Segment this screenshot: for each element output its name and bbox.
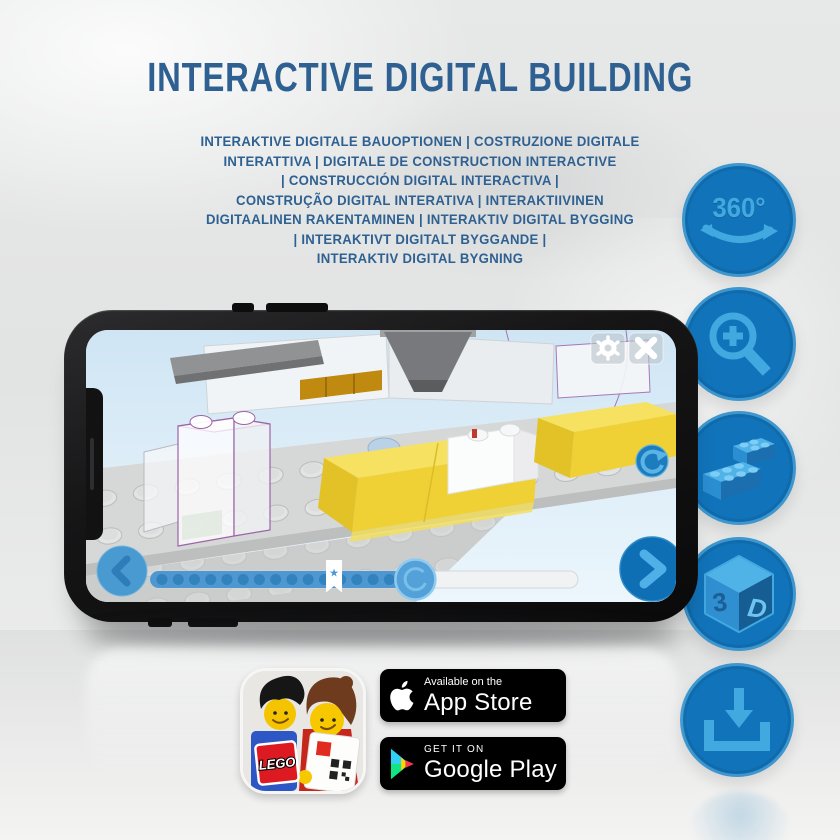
settings-button[interactable] [591, 333, 625, 364]
progress-dot [221, 574, 232, 585]
girl-hand [298, 770, 312, 784]
progress-dot [205, 574, 216, 585]
download-icon [699, 682, 775, 758]
progress-dot [384, 574, 395, 585]
rotate-button[interactable] [636, 445, 668, 477]
progress-dot [351, 574, 362, 585]
progress-dot [189, 574, 200, 585]
lego-app-icon[interactable]: LEGO [240, 668, 366, 794]
progress-dot [254, 574, 265, 585]
progress-dot [368, 574, 379, 585]
cube-face-d: D [746, 592, 769, 624]
progress-dot [303, 574, 314, 585]
subtitle-line: INTERATTIVA | DIGITALE DE CONSTRUCTION I… [25, 152, 815, 172]
progress-dot [157, 574, 168, 585]
red-detail [472, 429, 477, 438]
close-button[interactable] [629, 333, 663, 364]
apple-icon [380, 678, 424, 714]
360-label: 360° [712, 192, 765, 224]
app-screen: ★ [86, 330, 676, 602]
speaker-slit [90, 438, 94, 490]
google-play-badge[interactable]: GET IT ON Google Play [380, 737, 566, 790]
progress-dot [286, 574, 297, 585]
page-title: INTERACTIVE DIGITAL BUILDING [0, 54, 840, 101]
qr-card [304, 732, 360, 791]
app-store-badge[interactable]: Available on the App Store [380, 669, 566, 722]
progress-handle[interactable] [395, 560, 435, 600]
lego-brick-icon [699, 430, 779, 506]
poster: INTERACTIVE DIGITAL BUILDING INTERAKTIVE… [0, 0, 840, 840]
lego-building-scene: ★ [86, 330, 676, 602]
progress-dots [157, 574, 395, 585]
google-play-name: Google Play [424, 758, 557, 782]
progress-dot [238, 574, 249, 585]
google-play-icon [380, 747, 424, 781]
star-icon: ★ [329, 568, 339, 580]
feature-badge-download [680, 663, 794, 777]
subtitle-line: INTERAKTIVE DIGITALE BAUOPTIONEN | COSTR… [25, 132, 815, 152]
previous-step-button[interactable] [97, 546, 147, 596]
feature-badge-zoom [682, 287, 796, 401]
phone-volume-button [266, 303, 328, 312]
google-play-tagline: GET IT ON [424, 745, 557, 755]
phone-shadow [84, 624, 684, 650]
3d-cube-icon: 3 D [700, 553, 778, 635]
app-icon-art: LEGO [243, 671, 363, 791]
feature-badge-3d: 3 D [682, 537, 796, 651]
app-store-tagline: Available on the [424, 677, 533, 688]
lego-logo: LEGO [255, 741, 299, 785]
handle-circle [395, 560, 435, 600]
phone-power-button [232, 303, 254, 312]
progress-dot [173, 574, 184, 585]
feature-badge-360: 360° [682, 163, 796, 277]
app-store-name: App Store [424, 691, 533, 715]
feature-badge-bricks [682, 411, 796, 525]
360-rotation-arrow-icon [700, 224, 778, 250]
phone-notch [86, 388, 103, 540]
next-step-button[interactable] [620, 537, 676, 601]
zoom-in-icon [703, 308, 775, 380]
phone-side-button [148, 618, 172, 627]
phone-mockup: ★ [64, 310, 698, 622]
progress-dot [270, 574, 281, 585]
boy-face [264, 698, 296, 730]
